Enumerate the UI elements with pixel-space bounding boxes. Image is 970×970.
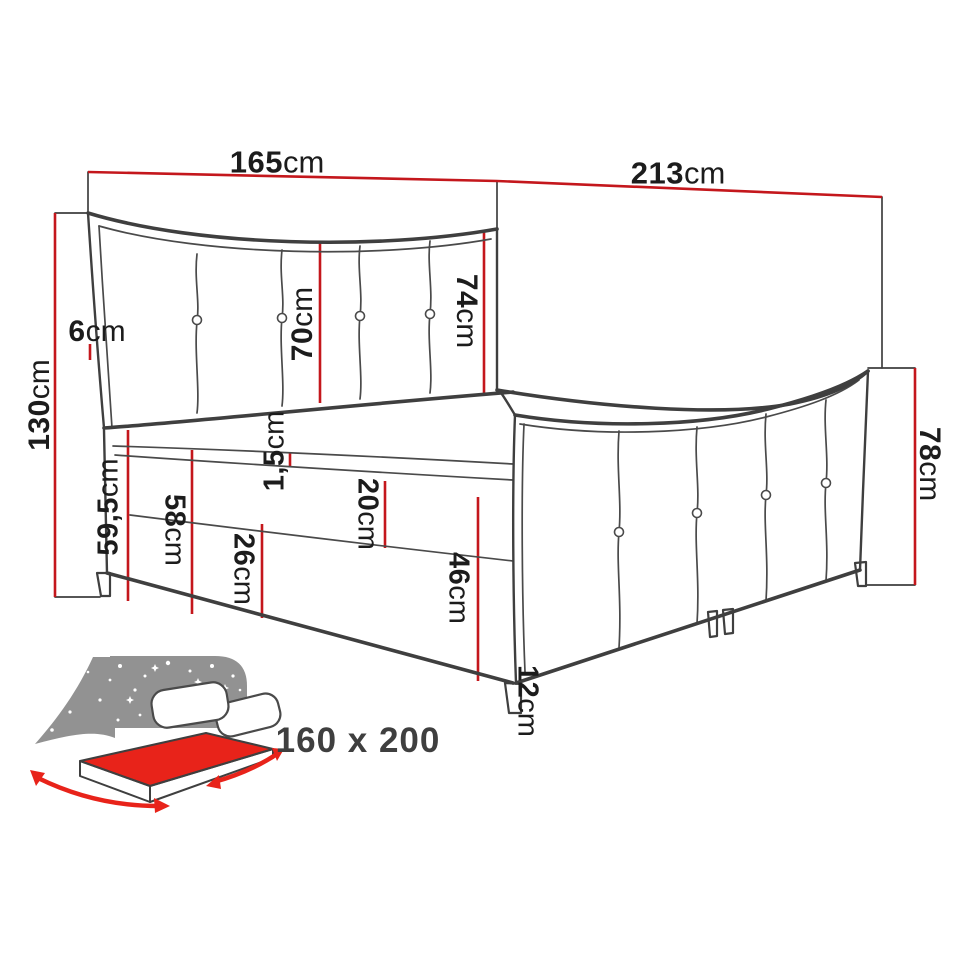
dim-label-leg-height: 12cm <box>513 665 542 737</box>
pillows <box>149 680 283 739</box>
dim-label-base-top-height: 58cm <box>160 494 189 566</box>
dim-label-mattress-thickness: 20cm <box>353 478 382 550</box>
dim-label-base-front-right: 46cm <box>444 552 473 624</box>
bed-size-icon <box>30 656 284 813</box>
dimension-lines <box>55 172 915 713</box>
dim-label-headboard-frame: 6cm <box>68 317 125 347</box>
bed-dimension-diagram: 165cm 213cm 130cm 6cm 70cm 74cm 59,5cm 5… <box>0 0 970 970</box>
dim-label-mattress-top-height: 59,5cm <box>95 458 124 555</box>
dim-label-total-height: 130cm <box>25 359 55 451</box>
dim-label-headboard-right: 74cm <box>451 274 481 348</box>
mattress-size-label: 160 x 200 <box>276 721 441 761</box>
dim-label-footboard-height: 78cm <box>914 427 944 501</box>
icon-mattress <box>80 733 273 802</box>
bed-line-drawing <box>0 0 970 970</box>
dim-label-headboard-left: 70cm <box>288 287 318 361</box>
dim-label-topper: 1,5cm <box>261 411 290 492</box>
dim-label-base-front-left: 26cm <box>229 533 258 605</box>
dim-label-length: 213cm <box>631 158 726 189</box>
dim-label-width: 165cm <box>230 147 325 178</box>
